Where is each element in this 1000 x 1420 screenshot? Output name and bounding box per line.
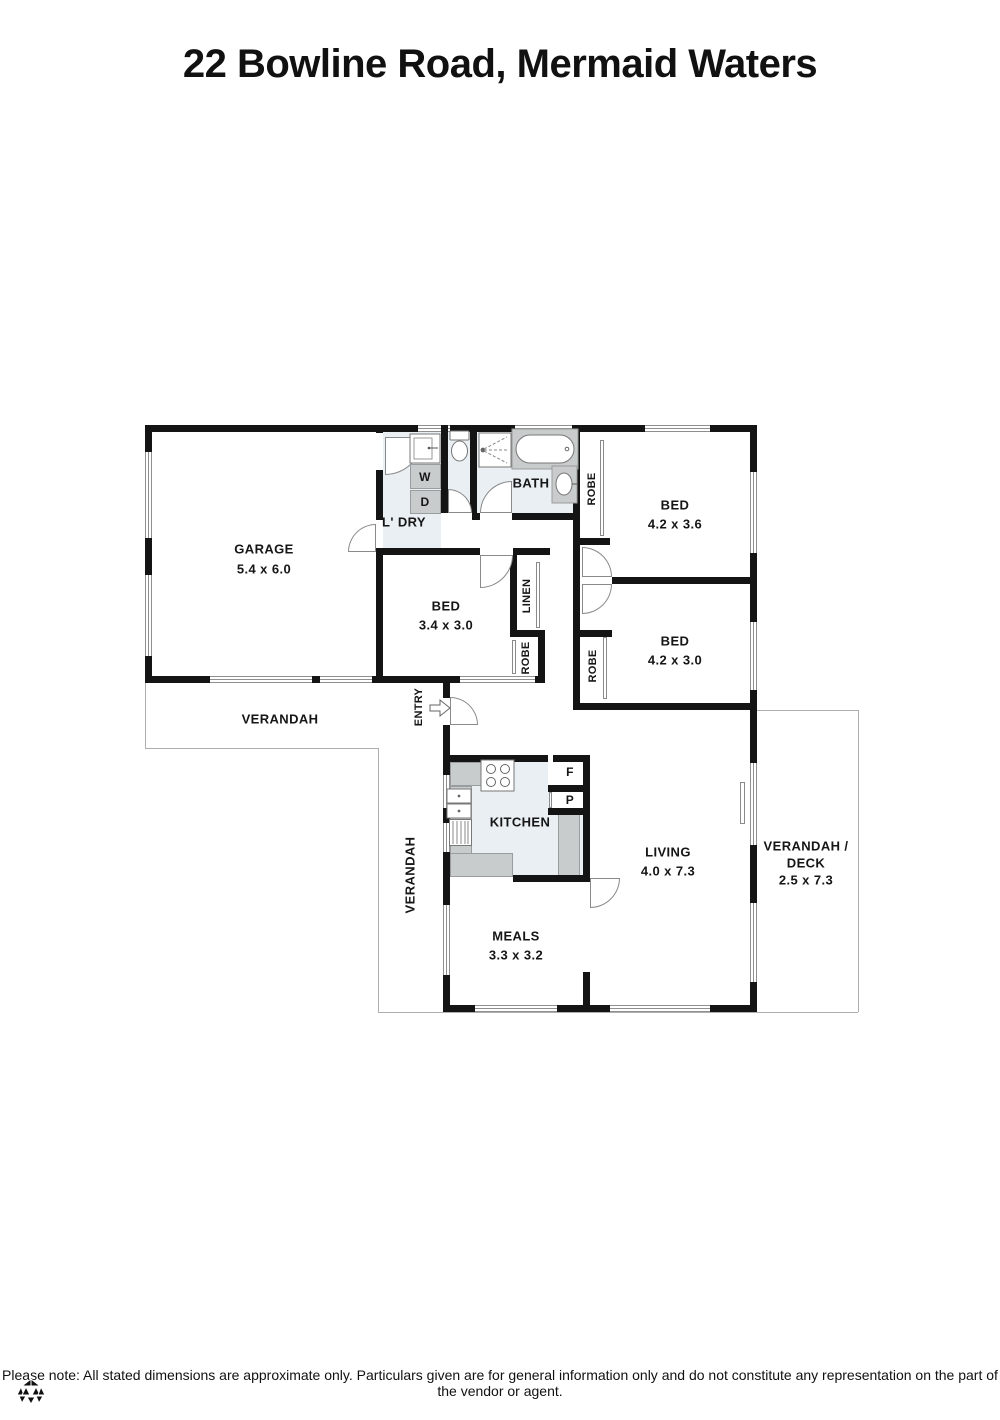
wall [538,637,545,683]
fridge-label: F [566,765,574,779]
wall [443,683,450,698]
agency-logo-icon [14,1377,48,1411]
robe-door-track [512,640,516,674]
bed2-label: BED [432,599,461,614]
verandah-front-label: VERANDAH [242,712,319,727]
wall [583,755,590,877]
window [645,425,710,432]
wall [145,425,152,452]
door-arc [348,524,376,552]
linen-door-track [536,562,540,628]
window [475,1005,557,1012]
kitchen-sink-icon [445,788,473,819]
toilet-icon [448,430,472,464]
wall [750,845,757,903]
linen-label: LINEN [521,579,533,614]
meals-dims: 3.3 x 3.2 [489,948,543,963]
pantry-label: P [566,793,574,807]
robe-label: ROBE [520,642,532,675]
sink-drainer-icon [449,819,472,846]
door-arc [582,547,612,577]
wall [512,513,577,520]
bathtub-icon [512,429,578,469]
sliding-door-panel [740,782,745,824]
bed3-dims: 4.2 x 3.0 [648,653,702,668]
wall [441,425,448,513]
entry-arrow-icon [428,699,452,717]
window [443,905,450,975]
floorplan-page: 22 Bowline Road, Mermaid Waters [0,0,1000,1420]
door-arc [590,878,620,908]
wall [710,1005,757,1012]
meals-label: MEALS [492,929,540,944]
wall [372,676,460,683]
wall [443,1005,475,1012]
bed2-dims: 3.4 x 3.0 [419,618,473,633]
wall [548,785,590,792]
wall [376,552,383,683]
wall [572,425,645,432]
door-arc [582,584,612,614]
living-dims: 4.0 x 7.3 [641,864,695,879]
verandah-outline [145,683,146,748]
shower-icon [478,432,513,469]
deck-dims: 2.5 x 7.3 [779,873,833,888]
vanity-basin-icon [552,466,578,504]
deck-outline [858,710,859,1012]
wall [513,548,550,555]
robe-label: ROBE [586,473,598,506]
bed3-label: BED [661,634,690,649]
kitchen-counter [558,812,580,877]
wall [376,425,383,433]
window [145,575,152,656]
wall [443,725,450,775]
garage-dims: 5.4 x 6.0 [237,562,291,577]
wall [510,630,545,637]
bed1-dims: 4.2 x 3.6 [648,517,702,532]
window [750,903,757,982]
stove-icon [480,759,516,793]
window [750,622,757,690]
robe-label: ROBE [587,650,599,683]
wall [510,555,517,637]
living-label: LIVING [645,845,691,860]
wall [580,630,612,637]
garage-label: GARAGE [234,542,293,557]
wall [443,852,450,905]
wall [145,538,152,575]
disclaimer-text: Please note: All stated dimensions are a… [0,1367,1000,1399]
verandah-outline [145,748,378,749]
window [610,1005,710,1012]
pantry-door-track [549,792,552,808]
verandah-outline [378,1012,858,1013]
laundry-label: L' DRY [382,515,426,530]
page-title: 22 Bowline Road, Mermaid Waters [0,42,1000,87]
window [320,676,372,683]
window [210,676,312,683]
sliding-door [750,763,757,845]
deck-label-line1: VERANDAH / [764,839,849,854]
wall [750,553,757,622]
wall [376,470,383,520]
window [750,472,757,553]
wall [548,808,590,815]
dryer-label: D [420,495,429,509]
wall [312,676,320,683]
kitchen-label: KITCHEN [490,815,551,830]
wall [750,425,757,472]
laundry-tub-icon [409,433,442,465]
wall [612,577,757,584]
robe-door-track [600,440,604,536]
washer-label: W [419,470,431,484]
bath-label: BATH [513,476,550,491]
door-arc [450,697,478,725]
wall [580,538,610,545]
verandah-side-label: VERANDAH [403,837,418,914]
window [145,452,152,538]
wall [145,676,210,683]
wall [513,875,590,882]
wall [750,690,757,763]
bed1-label: BED [661,498,690,513]
verandah-outline [378,748,379,1012]
door-arc [480,555,513,588]
robe-door-track [603,637,607,699]
wall [472,513,480,520]
window [460,676,535,683]
wall [557,1005,610,1012]
wall [376,548,480,555]
deck-label-line2: DECK [787,856,825,871]
kitchen-counter [450,853,513,877]
wall [573,703,757,710]
entry-label: ENTRY [413,688,425,726]
deck-outline [757,710,858,711]
